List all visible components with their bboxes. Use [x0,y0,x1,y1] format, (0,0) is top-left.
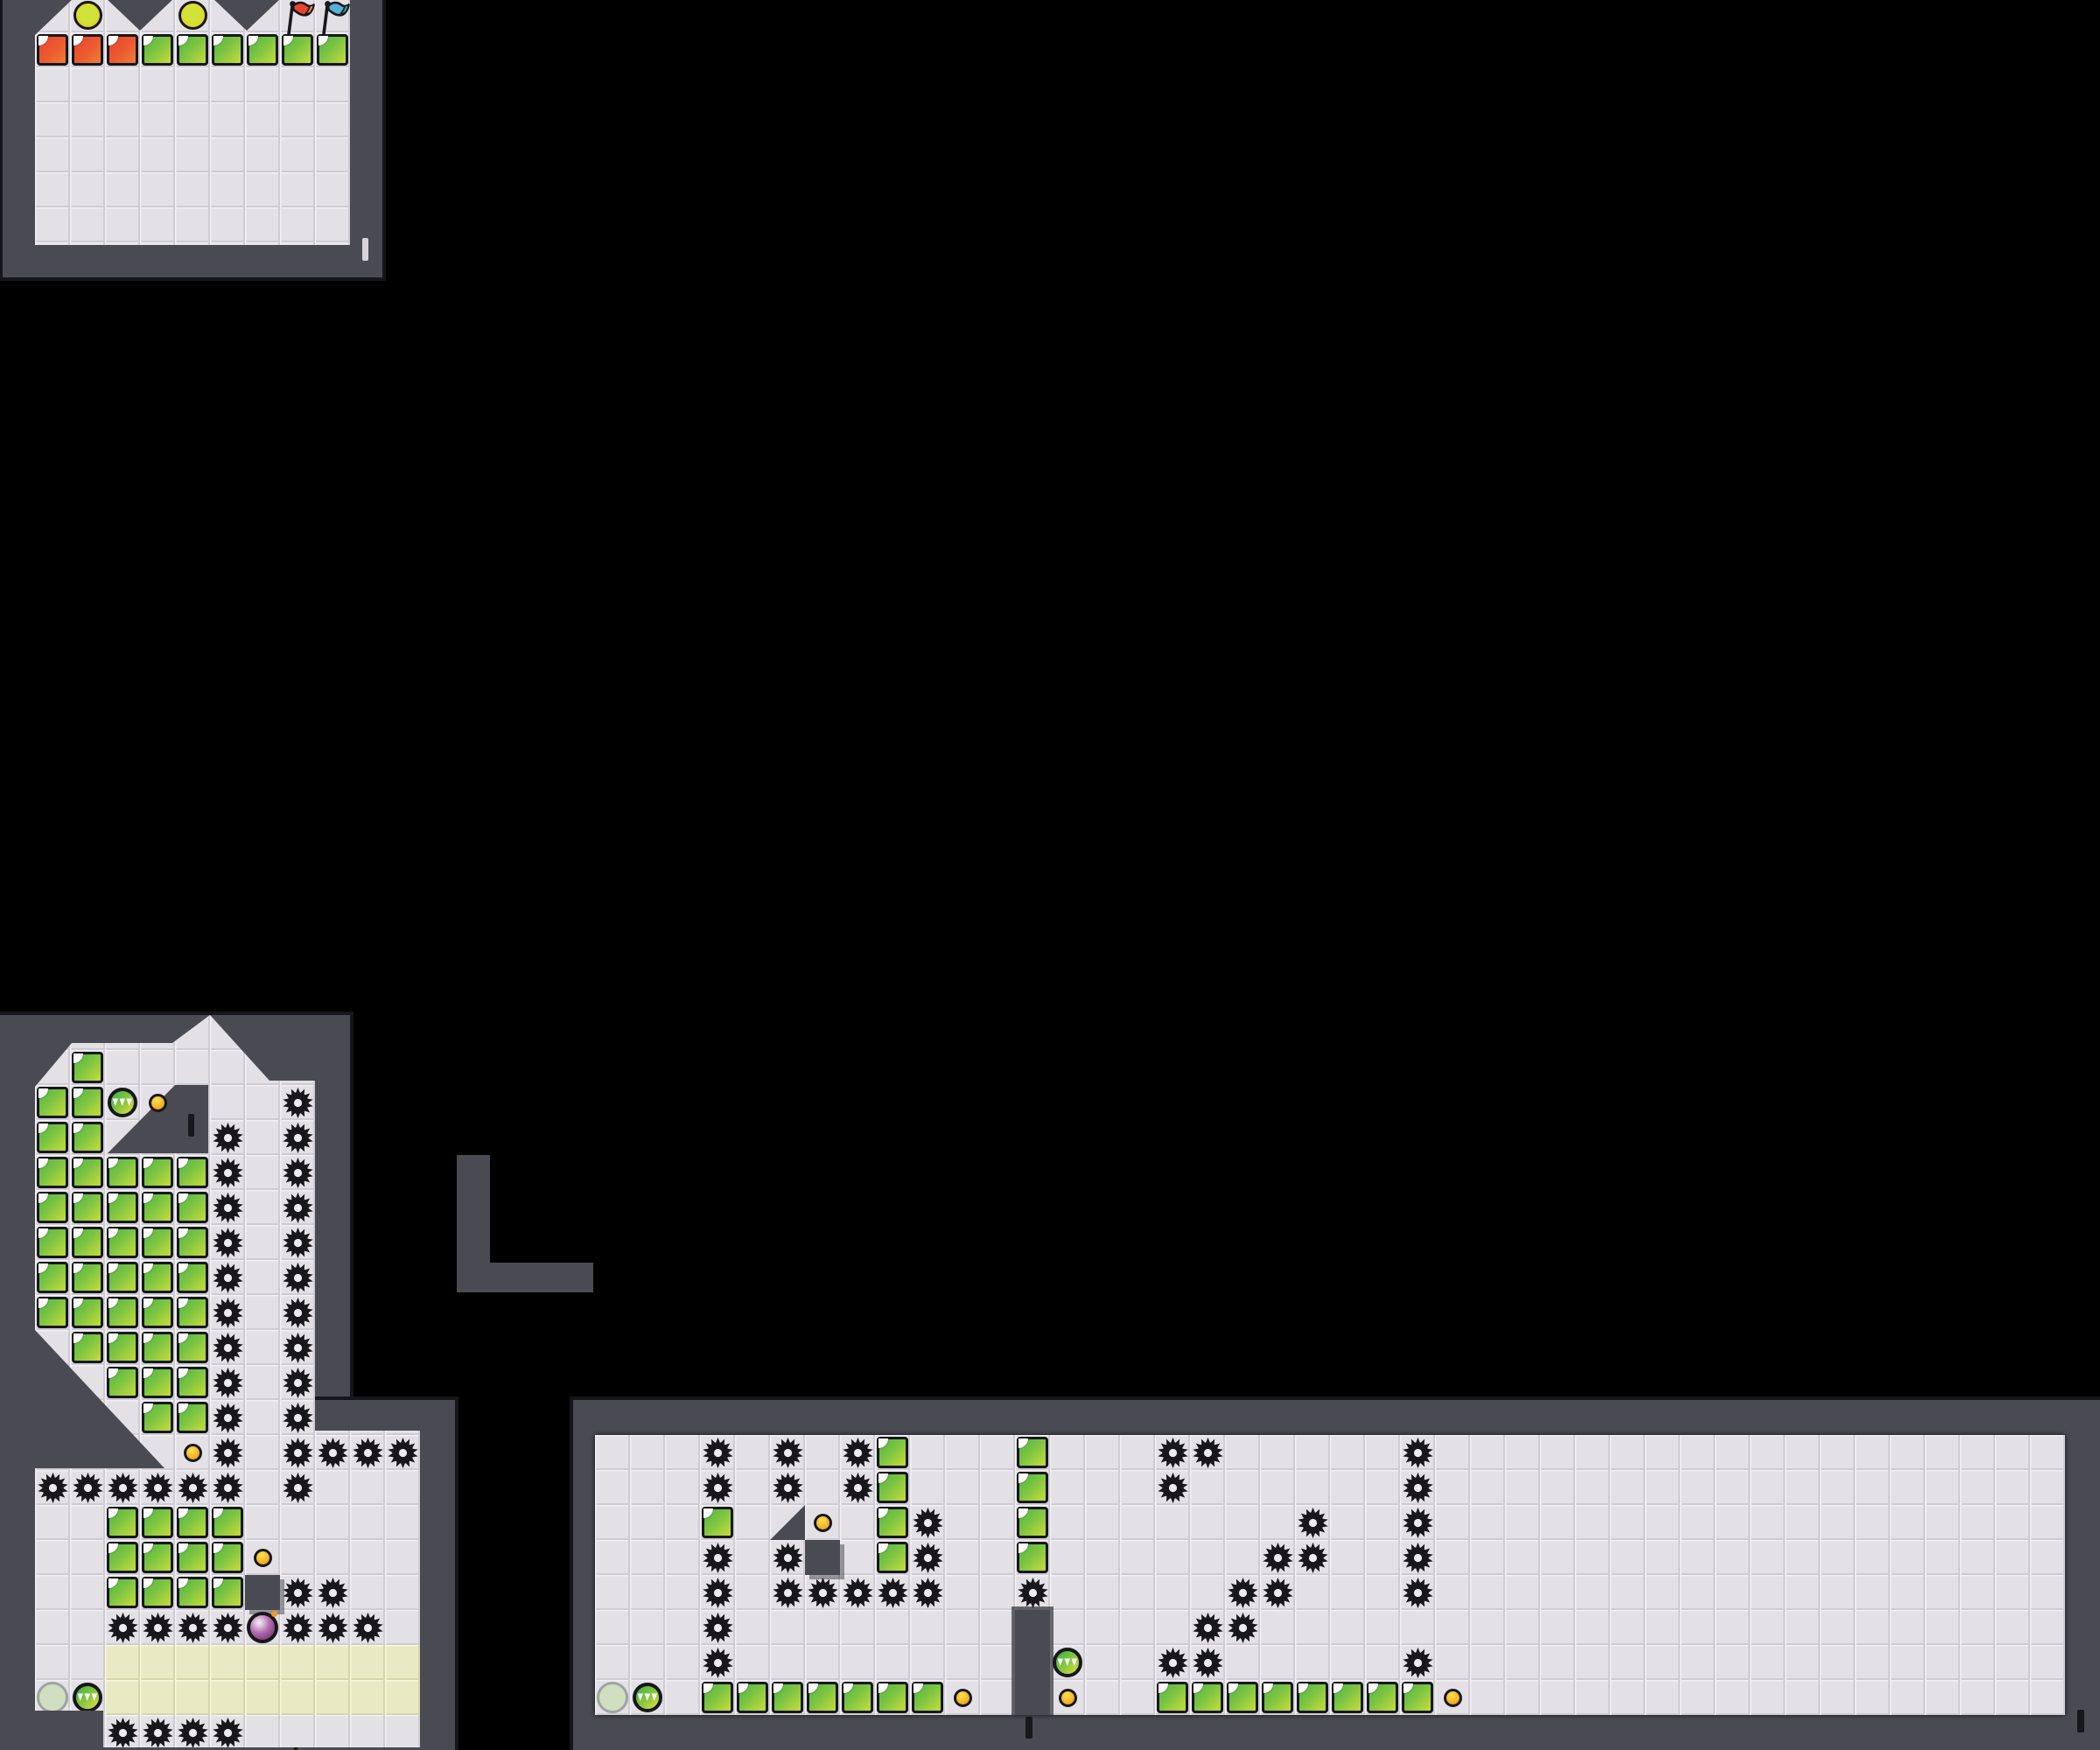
red-tile [107,34,138,66]
level-top-left-interior[interactable] [35,0,350,245]
gear-cell [280,1120,315,1155]
wall-pillar [1015,1610,1050,1715]
coin-cell [175,1435,210,1470]
green-tile-cell [1155,1680,1190,1715]
gear-cell [70,1470,105,1505]
folded-corner [178,1543,188,1553]
folded-corner [703,1508,713,1518]
green-tile-cell [1260,1680,1295,1715]
gear-cell [280,1610,315,1645]
folded-corner [108,1193,118,1203]
player-ball-cell [70,1680,105,1715]
green-tile [702,1507,733,1538]
folded-corner [143,1403,153,1413]
saw-gear-hazard-icon [212,1122,244,1154]
green-tile-cell [105,1505,140,1540]
green-tile [107,1192,138,1223]
saw-gear-hazard-icon [282,1087,314,1119]
folded-corner [73,1053,83,1063]
green-tile [1192,1682,1223,1713]
green-tile-cell [1330,1680,1365,1715]
saw-gear-hazard-icon [317,1612,349,1644]
folded-corner [178,1228,188,1238]
saw-gear-hazard-icon [282,1192,314,1224]
gear-cell [210,1365,245,1400]
folded-corner [143,1158,153,1168]
saw-gear-hazard-icon [1227,1577,1259,1609]
green-tile-cell [1015,1505,1050,1540]
gear-cell [1400,1540,1435,1575]
folded-corner [143,1578,153,1588]
gear-cell [910,1540,945,1575]
green-tile [107,1297,138,1328]
green-tile [702,1682,733,1713]
saw-gear-hazard-icon [212,1297,244,1329]
green-tile-cell [910,1680,945,1715]
saw-gear-hazard-icon [1297,1542,1329,1574]
saw-gear-hazard-icon [282,1122,314,1154]
green-tile [37,1157,68,1188]
folded-corner [38,1193,48,1203]
folded-corner [1333,1683,1343,1693]
folded-corner [1263,1683,1273,1693]
saw-gear-hazard-icon [212,1717,244,1749]
folded-corner [143,1263,153,1273]
gear-cell [1400,1470,1435,1505]
green-tile [107,1577,138,1608]
level-bottom-right-interior[interactable] [595,1435,2065,1715]
green-tile [212,1542,243,1573]
gear-cell [700,1435,735,1470]
gear-cell [350,1610,385,1645]
gear-cell [210,1120,245,1155]
folded-corner [178,1158,188,1168]
folded-corner [1018,1508,1028,1518]
green-tile [177,1542,208,1573]
green-tile [1017,1507,1048,1538]
green-tile-cell [105,1155,140,1190]
coin-cell [945,1680,980,1715]
gear-cell [175,1610,210,1645]
folded-corner [1298,1683,1308,1693]
gear-cell [315,1575,350,1610]
folded-corner [178,1403,188,1413]
green-tile [1017,1437,1048,1468]
green-tile-cell [770,1680,805,1715]
l-shaped-wall-piece [453,1151,597,1297]
green-tile-cell [105,1365,140,1400]
green-tile-cell [35,1120,70,1155]
player-ball [633,1683,662,1712]
green-tile [37,1122,68,1153]
green-tile-cell [140,1575,175,1610]
gear-cell [1295,1505,1330,1540]
spike-wedge-icon [105,0,175,31]
folded-corner [38,1228,48,1238]
saw-gear-hazard-icon [212,1402,244,1434]
gear-cell [700,1470,735,1505]
gear-cell [1260,1540,1295,1575]
big-coin-cell [70,0,105,32]
saw-gear-hazard-icon [702,1647,734,1679]
green-tile [107,1262,138,1293]
gear-cell [210,1155,245,1190]
flag-red-cell [280,0,315,32]
green-tile-cell [70,1050,105,1085]
green-tile [177,1332,208,1363]
saw-gear-hazard-icon [702,1437,734,1469]
green-tile-cell [140,1155,175,1190]
gear-cell [1155,1435,1190,1470]
saw-gear-hazard-icon [282,1367,314,1399]
wall-block [245,1575,280,1610]
saw-gear-hazard-icon [177,1472,209,1504]
green-tile [142,1367,173,1398]
green-tile-cell [140,1505,175,1540]
green-tile [142,1542,173,1573]
folded-corner [178,1508,188,1518]
saw-gear-hazard-icon [282,1262,314,1294]
gear-cell [1295,1540,1330,1575]
green-tile-cell [140,1225,175,1260]
folded-corner [878,1473,888,1483]
green-tile [212,34,243,66]
saw-gear-hazard-icon [142,1472,174,1504]
folded-corner [213,1578,223,1588]
green-tile [107,1542,138,1573]
player-ball-cell [105,1085,140,1120]
green-tile-cell [105,1190,140,1225]
green-tile [737,1682,768,1713]
green-tile-cell [175,1400,210,1435]
saw-gear-hazard-icon [212,1192,244,1224]
green-tile [282,34,313,66]
folded-corner [108,36,118,45]
green-tile-cell [805,1680,840,1715]
fuse-dot [271,1611,277,1617]
passage-marker [188,1114,194,1137]
green-tile-cell [140,1540,175,1575]
coin-cell [140,1085,175,1120]
green-tile [142,1332,173,1363]
saw-gear-hazard-icon [282,1437,314,1469]
folded-corner [108,1578,118,1588]
saw-gear-hazard-icon [702,1577,734,1609]
gear-cell [700,1645,735,1680]
green-tile-cell [700,1505,735,1540]
gear-cell [1155,1470,1190,1505]
green-tile-cell [35,1155,70,1190]
green-tile [142,1192,173,1223]
gear-cell [1225,1575,1260,1610]
folded-corner [143,1508,153,1518]
green-tile-cell [735,1680,770,1715]
saw-gear-hazard-icon [1192,1437,1224,1469]
saw-gear-hazard-icon [212,1227,244,1259]
saw-gear-hazard-icon [1157,1647,1189,1679]
folded-corner [143,1333,153,1343]
saw-gear-hazard-icon [282,1472,314,1504]
green-tile [177,34,208,66]
saw-gear-hazard-icon [1017,1577,1049,1609]
green-tile-cell [70,1295,105,1330]
gear-cell [35,1470,70,1505]
saw-gear-hazard-icon [772,1577,804,1609]
green-tile-cell [875,1435,910,1470]
folded-corner [878,1683,888,1693]
folded-corner [703,1683,713,1693]
folded-corner [143,1298,153,1308]
green-tile [72,1262,103,1293]
saw-gear-hazard-icon [912,1507,944,1539]
green-tile-cell [875,1680,910,1715]
green-tile [107,1507,138,1538]
gear-cell [700,1575,735,1610]
gear-cell [700,1610,735,1645]
folded-corner [38,1123,48,1133]
green-tile [317,34,348,66]
green-tile [72,1332,103,1363]
saw-gear-hazard-icon [212,1262,244,1294]
gear-cell [280,1155,315,1190]
green-tile [72,1192,103,1223]
green-tile-cell [700,1680,735,1715]
purple-ball [247,1612,278,1643]
green-tile-cell [105,1260,140,1295]
purple-ball-cell [245,1610,280,1645]
saw-gear-hazard-icon [282,1577,314,1609]
gear-cell [105,1610,140,1645]
saw-gear-hazard-icon [282,1402,314,1434]
green-tile-cell [1365,1680,1400,1715]
green-tile [72,1227,103,1258]
green-tile-cell [140,1330,175,1365]
gear-cell [175,1715,210,1750]
gear-cell [210,1470,245,1505]
gear-cell [210,1295,245,1330]
folded-corner [213,1543,223,1553]
gear-cell [315,1435,350,1470]
green-tile-cell [140,1365,175,1400]
saw-gear-hazard-icon [842,1472,874,1504]
gear-cell [105,1470,140,1505]
beige-floor-zone [105,1645,420,1715]
folded-corner [808,1683,818,1693]
saw-gear-hazard-icon [282,1157,314,1189]
folded-corner [878,1508,888,1518]
green-tile [37,1297,68,1328]
saw-gear-hazard-icon [1157,1437,1189,1469]
saw-gear-hazard-icon [387,1437,419,1469]
folded-corner [38,1263,48,1273]
saw-gear-hazard-icon [317,1437,349,1469]
green-tile [1262,1682,1293,1713]
saw-gear-hazard-icon [352,1437,384,1469]
saw-gear-hazard-icon [1402,1437,1434,1469]
green-tile-cell [175,1190,210,1225]
green-tile [177,1192,208,1223]
coin [814,1514,832,1532]
saw-gear-hazard-icon [842,1577,874,1609]
saw-gear-hazard-icon [912,1577,944,1609]
folded-corner [73,36,83,45]
green-tile [37,1227,68,1258]
saw-gear-hazard-icon [282,1612,314,1644]
green-tile-cell [875,1470,910,1505]
green-tile-cell [105,1225,140,1260]
green-tile [72,1297,103,1328]
folded-corner [773,1683,783,1693]
folded-corner [913,1683,923,1693]
passage-marker [362,238,368,261]
green-tile [177,1262,208,1293]
saw-gear-hazard-icon [1402,1647,1434,1679]
folded-corner [178,36,188,45]
ramp-wedge-block [770,1505,805,1540]
folded-corner [108,1333,118,1343]
saw-gear-hazard-icon [212,1332,244,1364]
gear-cell [840,1435,875,1470]
folded-corner [283,36,293,45]
green-tile-cell [875,1505,910,1540]
green-tile-cell [140,32,175,67]
saw-gear-hazard-icon [1402,1507,1434,1539]
gear-cell [210,1260,245,1295]
green-tile [877,1507,908,1538]
green-tile-cell [210,1505,245,1540]
folded-corner [213,1508,223,1518]
green-tile [1332,1682,1363,1713]
gear-cell [1400,1505,1435,1540]
folded-corner [213,36,223,45]
green-tile [142,1227,173,1258]
gear-cell [280,1085,315,1120]
saw-gear-hazard-icon [1192,1647,1224,1679]
folded-corner [143,36,153,45]
folded-corner [73,1158,83,1168]
saw-gear-hazard-icon [912,1542,944,1574]
green-tile-cell [175,1295,210,1330]
green-tile [807,1682,838,1713]
green-tile-cell [280,32,315,67]
gear-cell [1155,1645,1190,1680]
saw-gear-hazard-icon [177,1717,209,1749]
saw-gear-hazard-icon [877,1577,909,1609]
gear-cell [770,1470,805,1505]
folded-corner [178,1298,188,1308]
green-tile [107,1227,138,1258]
green-tile [1157,1682,1188,1713]
green-tile [177,1297,208,1328]
gear-cell [175,1470,210,1505]
folded-corner [73,1333,83,1343]
folded-corner [108,1543,118,1553]
green-tile-cell [70,1085,105,1120]
start-pad-cell [35,1680,70,1715]
green-tile-cell [70,1260,105,1295]
folded-corner [318,36,328,45]
saw-gear-hazard-icon [142,1612,174,1644]
green-tile [142,1262,173,1293]
gear-cell [140,1610,175,1645]
green-tile-cell [140,1400,175,1435]
gear-cell [280,1575,315,1610]
green-tile [842,1682,873,1713]
green-tile [72,1157,103,1188]
green-tile-cell [175,32,210,67]
gear-cell [700,1540,735,1575]
coin [1444,1689,1462,1707]
coin [149,1094,167,1112]
green-tile-cell [175,1155,210,1190]
green-tile-cell [1015,1470,1050,1505]
coin-cell [805,1505,840,1540]
green-tile [877,1682,908,1713]
folded-corner [843,1683,853,1693]
saw-gear-hazard-icon [702,1612,734,1644]
green-tile-cell [35,1295,70,1330]
gear-cell [210,1225,245,1260]
saw-gear-hazard-icon [107,1472,139,1504]
gear-cell [1190,1645,1225,1680]
gear-cell [805,1575,840,1610]
saw-gear-hazard-icon [772,1437,804,1469]
green-tile [1017,1472,1048,1503]
green-tile [37,1087,68,1118]
folded-corner [73,1123,83,1133]
gear-cell [210,1715,245,1750]
folded-corner [73,1228,83,1238]
green-tile-cell [70,1330,105,1365]
gear-cell [280,1260,315,1295]
green-tile-cell [175,1540,210,1575]
saw-gear-hazard-icon [1157,1472,1189,1504]
folded-corner [143,1228,153,1238]
folded-corner [1018,1438,1028,1448]
folded-corner [1018,1543,1028,1553]
gear-cell [210,1610,245,1645]
green-tile [37,1192,68,1223]
coin [1059,1689,1077,1707]
green-tile [177,1577,208,1608]
saw-gear-hazard-icon [1262,1577,1294,1609]
green-tile-cell [140,1190,175,1225]
green-tile [142,1402,173,1433]
green-tile-cell [1015,1540,1050,1575]
green-tile-cell [1225,1680,1260,1715]
saw-gear-hazard-icon [212,1472,244,1504]
blue-flag-icon [315,0,350,37]
green-tile [142,1577,173,1608]
flag-blue-cell [315,0,350,32]
folded-corner [1158,1683,1168,1693]
folded-corner [38,36,48,45]
saw-gear-hazard-icon [282,1297,314,1329]
level-bottom-left-interior[interactable] [35,1015,420,1750]
green-tile-cell [315,32,350,67]
folded-corner [178,1263,188,1273]
green-tile-cell [70,1120,105,1155]
gear-cell [280,1190,315,1225]
green-tile-cell [1015,1435,1050,1470]
folded-corner [38,1158,48,1168]
gear-cell [210,1190,245,1225]
gear-cell [280,1400,315,1435]
red-tile-cell [105,32,140,67]
folded-corner [143,1543,153,1553]
green-tile [912,1682,943,1713]
saw-gear-hazard-icon [1297,1507,1329,1539]
